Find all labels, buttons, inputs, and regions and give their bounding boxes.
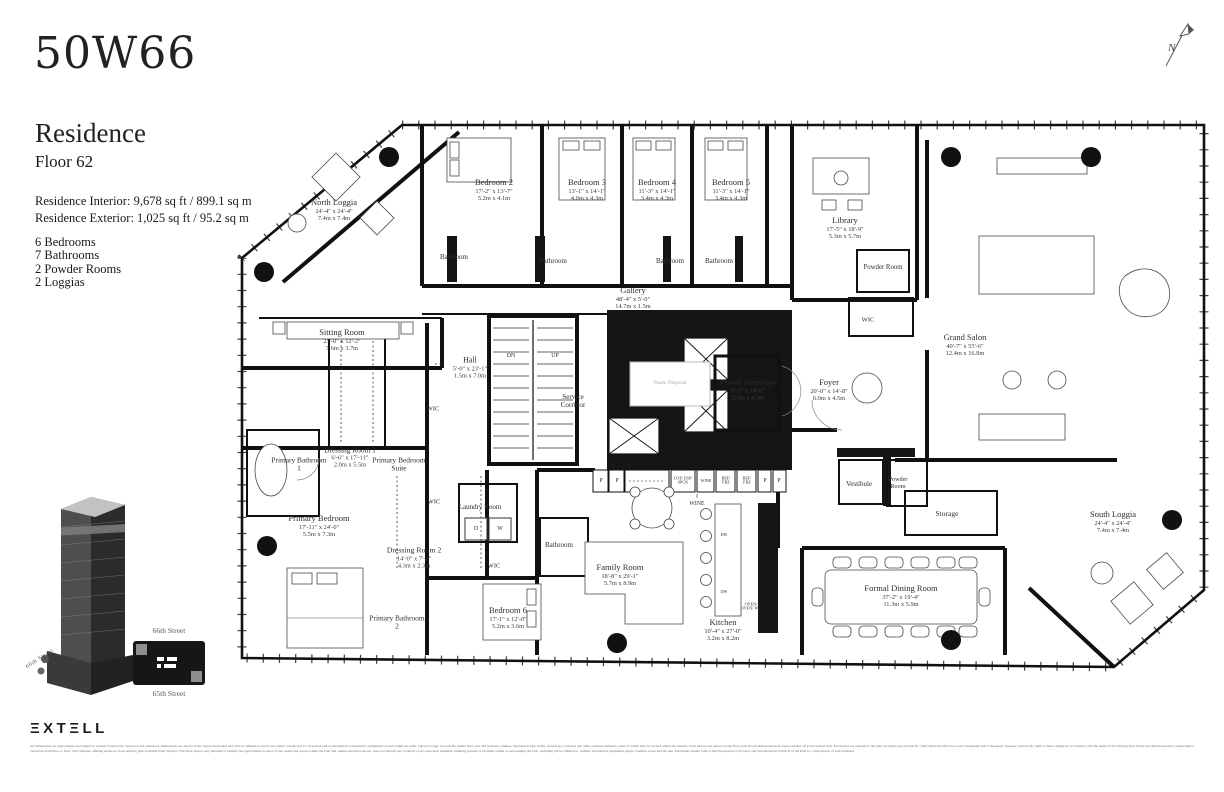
plan-annotation: Waste Disposal [653,381,686,387]
plan-annotation: DW [721,533,728,537]
plan-annotation: P [763,478,766,484]
site-corner-block [136,644,147,655]
plan-annotation: DW [721,590,728,594]
interior-area: Residence Interior: 9,678 sq ft / 899.1 … [35,194,252,209]
room-label: Library17'-5" x 18'-9"5.3m x 5.7m [826,216,863,240]
room-label: Powder Room [863,264,903,272]
legal-disclaimer: All dimensions are approximate and subje… [30,744,1194,754]
room-label: Foyer20'-0" x 14'-8"6.0m x 4.5m [810,378,847,402]
floorplan-sheet: { "brand": {"logo": "50W66", "extell": "… [0,0,1224,792]
room-label: Bedroom 511'-3" x 14'-1"3.4m x 4.3m [712,178,750,202]
site-logo-mark [157,657,183,669]
plan-annotation: REF/ FRZ [739,477,755,486]
room-label: Bedroom 411'-3" x 14'-1"3.4m x 4.3m [638,178,676,202]
plan-annotation: OVEN/ OVEN/ WD [739,603,763,612]
exterior-area: Residence Exterior: 1,025 sq ft / 95.2 s… [35,211,249,226]
room-label: Private Reception8'-1" x 14'-0"2.5m x 4.… [717,378,779,401]
room-label: Service Corridor [550,393,596,409]
room-label: Gallery48'-4" x 5'-0"14.7m x 1.5m [615,286,651,310]
room-label: Bathroom [440,254,468,262]
street-label-66: 66th Street [133,626,205,635]
room-label: Bathroom [705,258,733,266]
room-label: Bedroom 617'-1" x 12'-0"5.2m x 3.6m [489,606,527,630]
feature-item: 6 Bedrooms [35,236,121,249]
room-label: Bedroom 217'-2" x 13'-7"5.2m x 4.1m [475,178,513,202]
room-label: Kitchen10'-4" x 27'-0"3.2m x 8.2m [704,618,741,642]
room-label: Primary Bathroom 2 [368,615,426,632]
plan-annotation: UP [551,353,558,359]
room-label: Primary Bedroom17'-11" x 24'-0"5.5m x 7.… [288,514,349,538]
room-label: WIC [488,562,501,569]
feature-item: 7 Bathrooms [35,249,121,262]
room-label: Storage [936,510,959,518]
floor-label: Floor 62 [35,152,93,172]
plan-annotation: WINE [701,479,712,483]
extell-logo: ΞXTΞLL [30,720,108,737]
street-label-65: 65th Street [133,689,205,698]
room-label: Bedroom 313'-1" x 14'-1"4.0m x 4.3m [568,178,606,202]
room-labels: North Loggia24'-4" x 24'-4"7.4m x 7.4mBe… [237,118,1212,678]
feature-list: 6 Bedrooms7 Bathrooms2 Powder Rooms2 Log… [35,236,121,290]
brand-logo: 50W66 [34,28,196,79]
site-plan [133,641,205,685]
compass-label: N [1168,42,1175,54]
plan-annotation: D [474,526,478,532]
feature-item: 2 Loggias [35,276,121,289]
building-illustration [33,483,145,701]
room-label: Bathroom [545,542,573,550]
feature-item: 2 Powder Rooms [35,263,121,276]
room-label: WIC [862,316,875,323]
plan-annotation: P [599,478,602,484]
room-label: Family Room18'-8" x 29'-1"5.7m x 8.9m [597,563,644,587]
room-label: Bathroom [539,258,567,266]
room-label: Bathroom [656,258,684,266]
plan-annotation: DN [507,353,515,359]
room-label: Dressing Room 214'-0" x 7'-6"4.3m x 2.3m [376,546,452,569]
site-corner-block [191,671,202,682]
room-label: South Loggia24'-4" x 24'-4"7.4m x 7.4m [1090,510,1136,534]
plan-annotation: REF/ FRZ [718,477,734,486]
room-label: WIC [427,405,440,412]
room-label: Laundry Room [458,504,502,512]
north-arrow: N [1150,16,1208,74]
room-label: WIC [428,498,441,505]
room-label: Primary Bedroom Suite [371,457,427,474]
room-label: Powder Room [881,477,915,491]
page-title: Residence [35,118,146,149]
room-label: Vestibule [846,481,872,489]
room-label: Hall5'-0" x 23'-1"1.5m x 7.0m [453,356,487,379]
plan-annotation: W [497,526,502,532]
floorplan: North Loggia24'-4" x 24'-4"7.4m x 7.4mBe… [237,118,1212,678]
plan-annotation: WINE [689,501,704,507]
room-label: Formal Dining Room37'-2" x 19'-4"11.3m x… [864,584,937,608]
north-arrow-icon [1150,16,1208,74]
plan-annotation: P [777,478,780,484]
room-label: Grand Salon40'-7" x 55'-6"12.4m x 16.9m [944,333,987,357]
plan-annotation: COF/ ESP/ SPCK [673,477,693,486]
room-label: Sitting Room25'-0" x 12'-2"7.6m x 3.7m [319,328,365,352]
room-label: North Loggia24'-4" x 24'-4"7.4m x 7.4m [311,198,357,222]
plan-annotation: P [615,478,618,484]
